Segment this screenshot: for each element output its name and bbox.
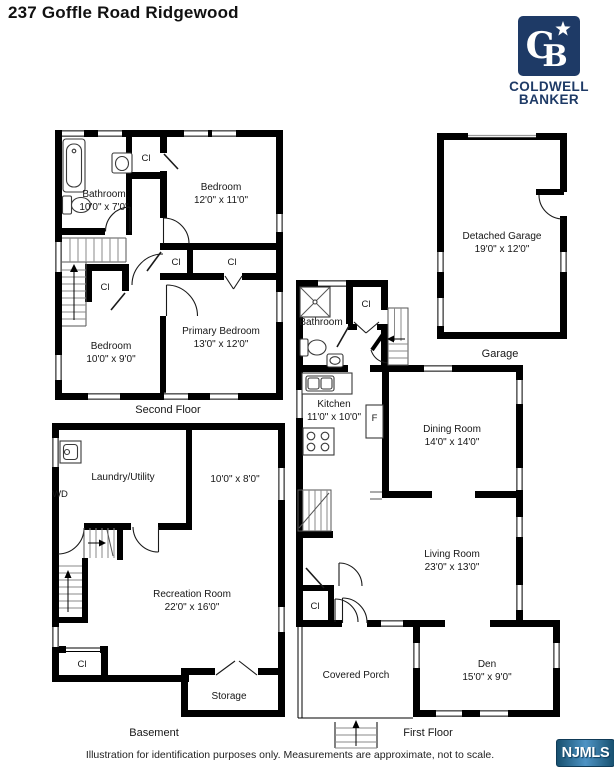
caption-first-floor: First Floor (403, 727, 453, 739)
room-label-laundry: Laundry/Utility (91, 472, 154, 483)
closet-label: Cl (311, 601, 320, 612)
caption-basement: Basement (129, 727, 179, 739)
kitchen-sink-counter (302, 373, 352, 394)
room-dims-bedroom-rear: 10'0" x 9'0" (86, 354, 136, 365)
bathroom-sink (327, 354, 343, 367)
disclaimer-text: Illustration for identification purposes… (55, 749, 525, 761)
room-dims-bedroom-front: 12'0" x 11'0" (194, 195, 249, 206)
closet-label: Cl (101, 282, 110, 293)
room-label-bedroom-front: Bedroom (201, 182, 242, 193)
closet-label: Cl (78, 659, 87, 670)
room-label-kitchen: Kitchen (317, 399, 350, 410)
floor-plan-page: 237 Goffle Road Ridgewood C B COLDWELL B… (0, 0, 614, 768)
room-label-bathroom-1f: Bathroom (299, 317, 342, 328)
garage-plan: Detached Garage 19'0" x 12'0" Garage (438, 134, 566, 361)
fridge-label: F (372, 413, 378, 424)
closet-label: Cl (362, 299, 371, 310)
room-label-recreation-room: Recreation Room (153, 589, 231, 600)
room-dims-living-room: 23'0" x 13'0" (425, 562, 480, 573)
floor-plan-drawing: Bathroom 10'0" x 7'0" Cl Bedroom 12'0" x… (0, 0, 614, 768)
room-dims-kitchen: 11'0" x 10'0" (307, 412, 362, 423)
room-dims-detached-garage: 19'0" x 12'0" (475, 244, 530, 255)
room-label-bathroom-2f: Bathroom (82, 189, 125, 200)
stove (303, 428, 334, 455)
room-label-den: Den (478, 659, 496, 670)
njmls-logo: NJMLS (556, 739, 614, 767)
porch-steps (335, 720, 377, 748)
room-dims-bonus-room: 10'0" x 8'0" (210, 474, 260, 485)
shower (300, 287, 330, 317)
closet-label: Cl (142, 153, 151, 164)
closet-label: Cl (172, 257, 181, 268)
basement-plan: Laundry/Utility WD 10'0" x 8'0" Recreati… (52, 423, 285, 739)
caption-garage: Garage (482, 348, 519, 360)
first-floor-plan: Bathroom Cl Kitchen 11'0" x 10'0" F Dini… (296, 280, 560, 748)
closet-label: Cl (228, 257, 237, 268)
room-label-covered-porch: Covered Porch (323, 670, 390, 681)
room-label-storage: Storage (211, 691, 246, 702)
room-dims-dining-room: 14'0" x 14'0" (425, 437, 480, 448)
room-dims-recreation-room: 22'0" x 16'0" (165, 602, 220, 613)
room-label-primary-bedroom: Primary Bedroom (182, 326, 260, 337)
room-label-dining-room: Dining Room (423, 424, 481, 435)
washer-dryer-label: WD (52, 489, 68, 500)
bathroom-sink (112, 153, 132, 173)
bathtub (63, 139, 85, 192)
toilet (300, 339, 326, 356)
first-floor-walls (296, 280, 560, 717)
second-floor-plan: Bathroom 10'0" x 7'0" Cl Bedroom 12'0" x… (56, 131, 282, 416)
garage-door-opening (468, 134, 536, 136)
room-dims-bathroom-2f: 10'0" x 7'0" (79, 202, 129, 213)
caption-second-floor: Second Floor (135, 404, 201, 416)
room-label-detached-garage: Detached Garage (463, 231, 542, 242)
room-dims-den: 15'0" x 9'0" (462, 672, 512, 683)
room-label-living-room: Living Room (424, 549, 480, 560)
laundry-sink (60, 441, 81, 463)
hall-stairs (387, 308, 408, 365)
room-dims-primary-bedroom: 13'0" x 12'0" (194, 339, 249, 350)
basement-walls (52, 423, 285, 717)
room-label-bedroom-rear: Bedroom (91, 341, 132, 352)
basement-access-stairs (298, 490, 331, 531)
